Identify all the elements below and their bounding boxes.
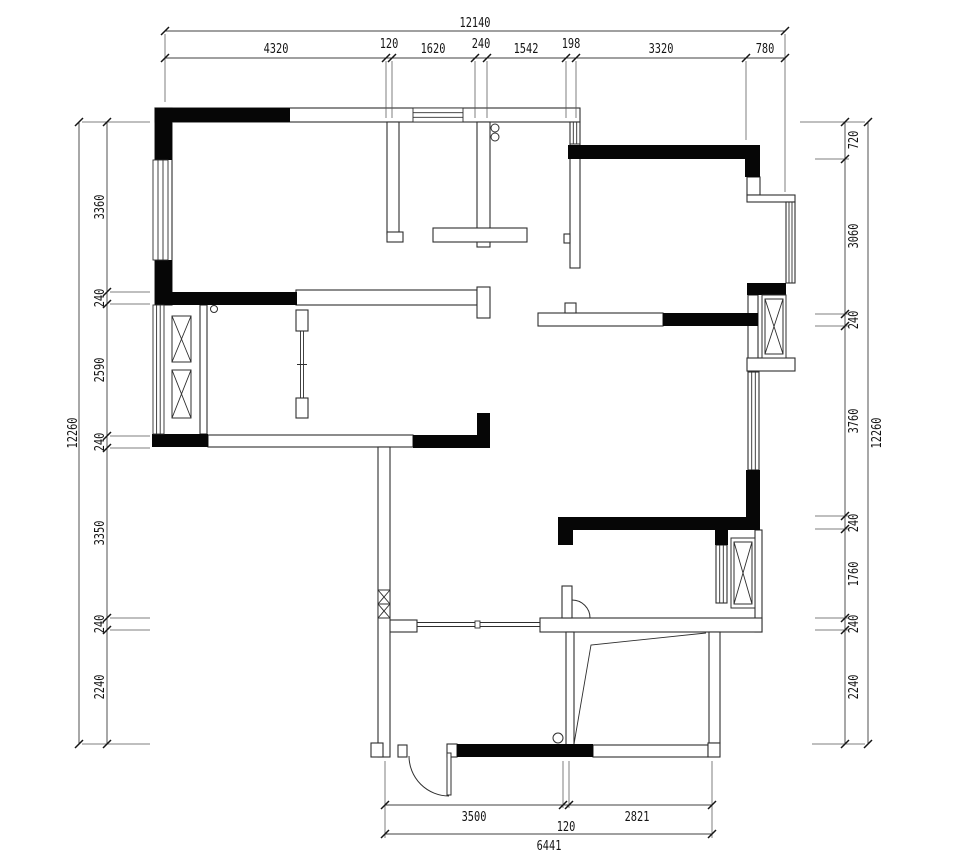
dim-left-overall: 12260: [66, 418, 81, 449]
sliding-door-symbols: [297, 331, 540, 628]
shaft-hatch-symbols: [172, 295, 786, 618]
balcony-slope-lines: [574, 633, 706, 744]
dim-bottom-seg: 2821: [625, 810, 650, 825]
dim-left-seg: 3350: [93, 521, 108, 546]
dim-top-seg: 4320: [264, 42, 289, 57]
dim-right-seg: 3060: [847, 224, 862, 249]
floor-plan-page: 12140 4320 120 1620 240 1542 198 3320 78…: [0, 0, 963, 868]
dim-right-seg: 720: [847, 131, 862, 150]
dim-left-seg: 2240: [93, 675, 108, 700]
dim-right-seg: 1760: [847, 562, 862, 587]
dim-bottom-overall: 6441: [537, 839, 562, 854]
dim-right-seg: 240: [847, 514, 862, 533]
dim-top-seg: 240: [472, 37, 491, 52]
walls-hollow: [155, 108, 795, 757]
dim-left-seg: 240: [93, 433, 108, 452]
dim-top-seg: 3320: [649, 42, 674, 57]
dim-top-seg: 120: [380, 37, 399, 52]
dim-top-seg: 1542: [514, 42, 539, 57]
dim-right-overall: 12260: [870, 418, 885, 449]
floor-plan-canvas: 12140 4320 120 1620 240 1542 198 3320 78…: [0, 0, 963, 868]
dim-right-seg: 240: [847, 615, 862, 634]
walls-solid: [152, 108, 786, 757]
dim-left-seg: 3360: [93, 195, 108, 220]
dim-top-seg: 1620: [421, 42, 446, 57]
dim-bottom-seg: 3500: [462, 810, 487, 825]
dim-right-seg: 2240: [847, 675, 862, 700]
dim-left-seg: 240: [93, 615, 108, 634]
dim-left-seg: 240: [93, 289, 108, 308]
dim-top-seg: 780: [756, 42, 775, 57]
dim-right-seg: 240: [847, 311, 862, 330]
dim-top-seg: 198: [562, 37, 581, 52]
dim-left-seg: 2590: [93, 358, 108, 383]
dim-top-overall: 12140: [460, 16, 491, 31]
dim-right-seg: 3760: [847, 409, 862, 434]
dim-bottom-seg: 120: [557, 820, 576, 835]
